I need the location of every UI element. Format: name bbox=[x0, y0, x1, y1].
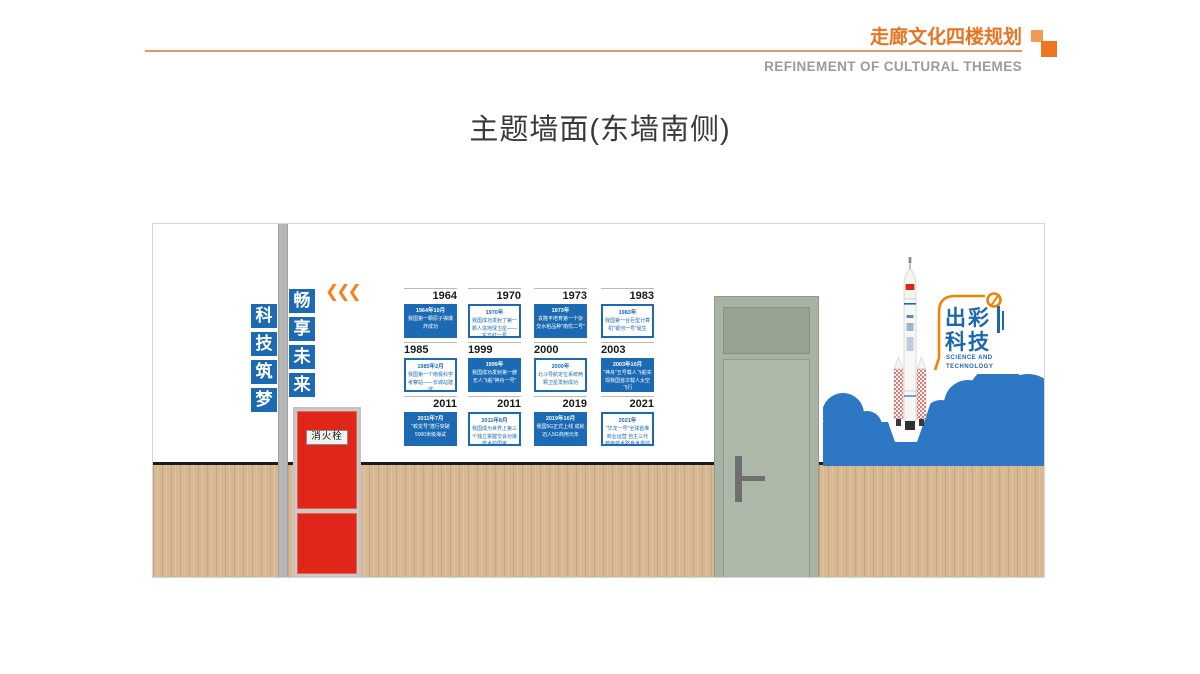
timeline-year-label: 1970 bbox=[468, 290, 521, 303]
timeline-event-box: 2019年10月我国5G正式上线 成就迈入5G商用元年 bbox=[534, 412, 587, 446]
timeline-event-date: 2021年 bbox=[605, 417, 650, 426]
timeline-year-label: 1973 bbox=[534, 290, 587, 303]
door-transom-window bbox=[723, 307, 810, 354]
timeline-card-2021-11: 20212021年"华龙一号"全球首堆商业运营 自主三代核电技术跻身世界前列 bbox=[601, 396, 654, 446]
timeline-event-date: 2019年10月 bbox=[536, 415, 585, 424]
slide-page: 走廊文化四楼规划 REFINEMENT OF CULTURAL THEMES 主… bbox=[0, 0, 1200, 674]
logo-subtitle: SCIENCE AND TECHNOLOGY bbox=[946, 354, 993, 372]
timeline-event-date: 2011年8月 bbox=[472, 417, 517, 426]
timeline-event-date: 1973年 bbox=[536, 307, 585, 316]
timeline-card-1985-4: 19851985年2月我国第一个南极科学考察站——长城站建成 bbox=[404, 342, 457, 392]
timeline-year-label: 1964 bbox=[404, 290, 457, 303]
timeline-event-desc: 我国成为世界上第三个独立掌握交会对接技术的国家 bbox=[472, 426, 517, 446]
timeline-event-desc: "华龙一号"全球首堆商业运营 自主三代核电技术跻身世界前列 bbox=[605, 426, 650, 446]
timeline-card-2003-7: 20032003年10月"神舟"五号载人飞船实现我国首次载人太空飞行 bbox=[601, 342, 654, 392]
timeline-tick-line bbox=[404, 342, 457, 343]
timeline-event-date: 1970年 bbox=[472, 309, 517, 318]
fire-hydrant-label: 消火栓 bbox=[306, 430, 348, 445]
timeline-tick-line bbox=[601, 396, 654, 397]
timeline-event-box: 2021年"华龙一号"全球首堆商业运营 自主三代核电技术跻身世界前列 bbox=[601, 412, 654, 446]
timeline-card-1983-3: 19831983年我国第一台巨型计算机"银河一号"诞生 bbox=[601, 288, 654, 338]
timeline-year-label: 2021 bbox=[601, 398, 654, 411]
timeline-tick-line bbox=[404, 396, 457, 397]
timeline-tick-line bbox=[601, 288, 654, 289]
door-handle-bar bbox=[742, 476, 765, 481]
cloud-graphic bbox=[823, 374, 1045, 466]
timeline-event-desc: 我国第一台巨型计算机"银河一号"诞生 bbox=[605, 318, 650, 334]
header-subtitle: REFINEMENT OF CULTURAL THEMES bbox=[764, 59, 1022, 74]
door-leaf bbox=[723, 359, 810, 578]
timeline-card-1999-5: 19991999年我国成功发射第一艘无人飞船"神舟一号" bbox=[468, 342, 521, 392]
timeline-event-desc: 袁隆平培育第一个杂交水稻品种"南优二号" bbox=[536, 316, 585, 332]
timeline-year-label: 2011 bbox=[468, 398, 521, 411]
rocket-illustration bbox=[891, 257, 929, 437]
timeline-tick-line bbox=[468, 342, 521, 343]
timeline-event-box: 2000年北斗导航定位系统两颗卫星发射成功 bbox=[534, 358, 587, 392]
timeline-year-label: 1999 bbox=[468, 344, 521, 357]
timeline-event-desc: "蛟龙号"潜行突破5000米级海试 bbox=[406, 424, 455, 440]
timeline-event-box: 2011年8月我国成为世界上第三个独立掌握交会对接技术的国家 bbox=[468, 412, 521, 446]
timeline-year-label: 1985 bbox=[404, 344, 457, 357]
timeline-year-label: 2000 bbox=[534, 344, 587, 357]
timeline-card-1973-2: 19731973年袁隆平培育第一个杂交水稻品种"南优二号" bbox=[534, 288, 587, 338]
fire-hydrant-cabinet: 消火栓 bbox=[293, 407, 361, 578]
timeline-event-box: 1973年袁隆平培育第一个杂交水稻品种"南优二号" bbox=[534, 304, 587, 338]
timeline-year-label: 2011 bbox=[404, 398, 457, 411]
timeline-card-2000-6: 20002000年北斗导航定位系统两颗卫星发射成功 bbox=[534, 342, 587, 392]
page-title: 主题墙面(东墙南侧) bbox=[0, 106, 1200, 148]
timeline-event-box: 1983年我国第一台巨型计算机"银河一号"诞生 bbox=[601, 304, 654, 338]
timeline-card-1964-0: 19641964年10月我国第一颗原子弹爆炸成功 bbox=[404, 288, 457, 338]
timeline-event-date: 2000年 bbox=[538, 363, 583, 372]
fire-hydrant-bottom-panel bbox=[297, 513, 357, 574]
timeline-tick-line bbox=[468, 396, 521, 397]
timeline-event-box: 2011年7月"蛟龙号"潜行突破5000米级海试 bbox=[404, 412, 457, 446]
timeline-event-date: 1983年 bbox=[605, 309, 650, 318]
logo-text-keji: 科技 bbox=[945, 326, 991, 356]
timeline-year-label: 2003 bbox=[601, 344, 654, 357]
timeline-tick-line bbox=[534, 288, 587, 289]
door bbox=[714, 296, 819, 578]
timeline-event-box: 1964年10月我国第一颗原子弹爆炸成功 bbox=[404, 304, 457, 338]
timeline-event-box: 1985年2月我国第一个南极科学考察站——长城站建成 bbox=[404, 358, 457, 392]
header-accent-square-large-icon bbox=[1041, 41, 1057, 57]
timeline-card-1970-1: 19701970年我国成功发射了第一颗人造地球卫星——东方红一号 bbox=[468, 288, 521, 338]
timeline-card-2019-10: 20192019年10月我国5G正式上线 成就迈入5G商用元年 bbox=[534, 396, 587, 446]
fire-hydrant-top-panel: 消火栓 bbox=[297, 411, 357, 509]
timeline-card-2011-9: 20112011年8月我国成为世界上第三个独立掌握交会对接技术的国家 bbox=[468, 396, 521, 446]
timeline-tick-line bbox=[534, 342, 587, 343]
wall-elevation-drawing: 科技筑梦 畅享未来 ❮❮❮ 19641964年10月我国第一颗原子弹爆炸成功19… bbox=[152, 223, 1045, 578]
door-handle-icon bbox=[735, 456, 742, 502]
timeline-event-desc: 我国5G正式上线 成就迈入5G商用元年 bbox=[536, 424, 585, 440]
header-divider-line bbox=[145, 50, 1022, 52]
timeline-year-label: 1983 bbox=[601, 290, 654, 303]
logo-accent-bar bbox=[1002, 311, 1004, 330]
timeline-event-date: 1999年 bbox=[470, 361, 519, 370]
timeline-event-desc: 我国第一颗原子弹爆炸成功 bbox=[406, 316, 455, 332]
timeline-event-box: 1970年我国成功发射了第一颗人造地球卫星——东方红一号 bbox=[468, 304, 521, 338]
timeline-event-desc: "神舟"五号载人飞船实现我国首次载人太空飞行 bbox=[603, 370, 652, 392]
timeline-tick-line bbox=[404, 288, 457, 289]
timeline-event-desc: 我国第一个南极科学考察站——长城站建成 bbox=[408, 372, 453, 392]
timeline-event-date: 2003年10月 bbox=[603, 361, 652, 370]
timeline-tick-line bbox=[534, 396, 587, 397]
timeline-year-label: 2019 bbox=[534, 398, 587, 411]
timeline-event-desc: 我国成功发射第一艘无人飞船"神舟一号" bbox=[470, 370, 519, 386]
timeline-event-box: 1999年我国成功发射第一艘无人飞船"神舟一号" bbox=[468, 358, 521, 392]
header-title: 走廊文化四楼规划 bbox=[870, 22, 1022, 49]
timeline-tick-line bbox=[601, 342, 654, 343]
timeline-event-date: 1985年2月 bbox=[408, 363, 453, 372]
timeline-event-box: 2003年10月"神舟"五号载人飞船实现我国首次载人太空飞行 bbox=[601, 358, 654, 392]
logo-accent-bar bbox=[997, 306, 1000, 333]
timeline-tick-line bbox=[468, 288, 521, 289]
science-tech-logo: 出彩 科技 SCIENCE AND TECHNOLOGY bbox=[933, 286, 1019, 376]
timeline-event-date: 2011年7月 bbox=[406, 415, 455, 424]
timeline-event-desc: 我国成功发射了第一颗人造地球卫星——东方红一号 bbox=[472, 318, 517, 338]
timeline-event-date: 1964年10月 bbox=[406, 307, 455, 316]
timeline-event-desc: 北斗导航定位系统两颗卫星发射成功 bbox=[538, 372, 583, 388]
timeline-card-2011-8: 20112011年7月"蛟龙号"潜行突破5000米级海试 bbox=[404, 396, 457, 446]
